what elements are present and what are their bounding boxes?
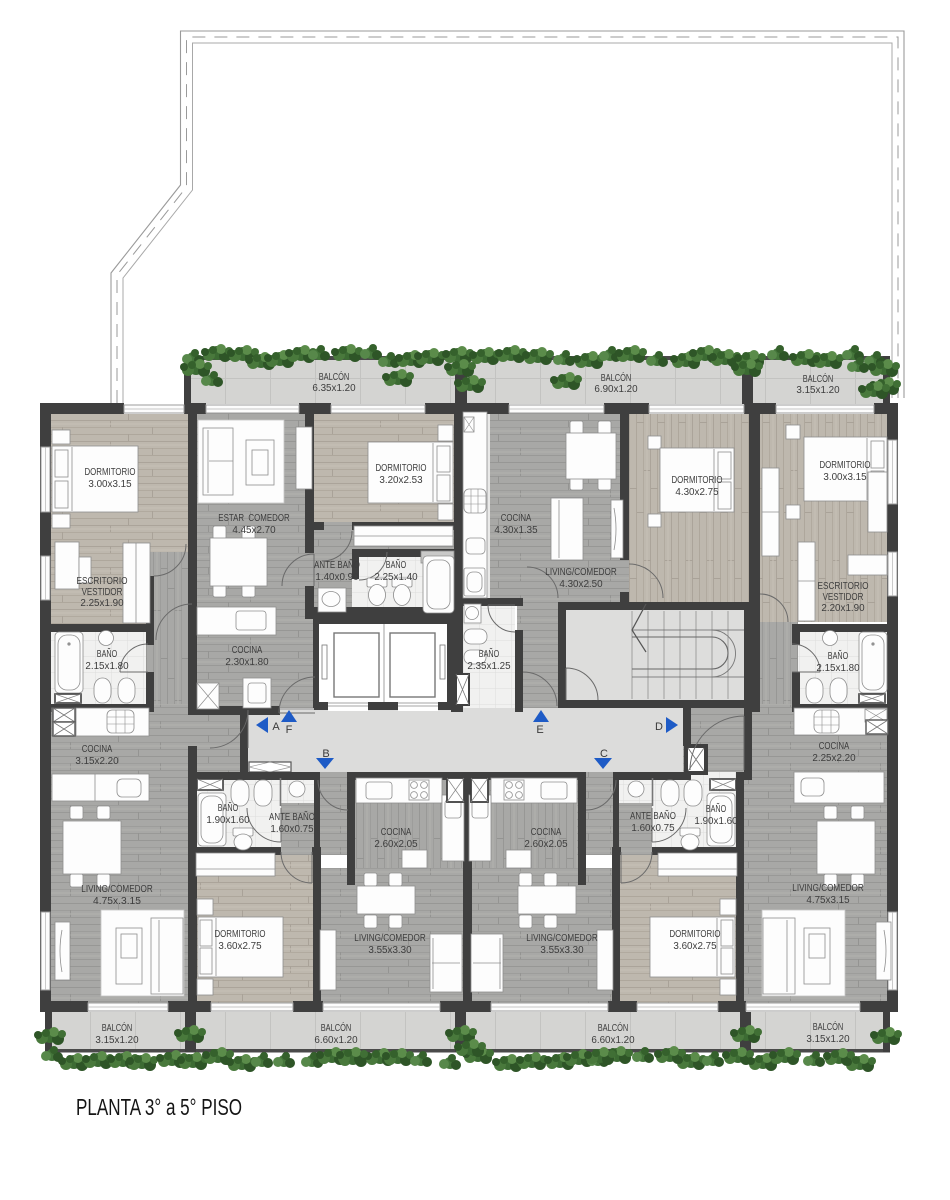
- svg-text:3.60x2.75: 3.60x2.75: [218, 941, 262, 952]
- svg-text:3.20x2.53: 3.20x2.53: [379, 475, 423, 486]
- svg-text:3.15x1.20: 3.15x1.20: [806, 1034, 850, 1045]
- svg-text:F: F: [286, 724, 293, 736]
- svg-text:BALCÓN: BALCÓN: [102, 1021, 133, 1034]
- svg-text:BALCÓN: BALCÓN: [598, 1021, 629, 1034]
- svg-text:BAÑO: BAÑO: [97, 647, 118, 660]
- svg-text:BALCÓN: BALCÓN: [813, 1020, 844, 1033]
- svg-text:VESTIDOR: VESTIDOR: [823, 592, 864, 603]
- svg-text:2.30x1.80: 2.30x1.80: [225, 657, 269, 668]
- svg-text:3.15x1.20: 3.15x1.20: [796, 385, 840, 396]
- svg-text:3.00x3.15: 3.00x3.15: [88, 479, 132, 490]
- svg-text:3.60x2.75: 3.60x2.75: [673, 941, 717, 952]
- svg-text:DORMITORIO: DORMITORIO: [215, 929, 266, 940]
- svg-text:4.30x1.35: 4.30x1.35: [494, 525, 538, 536]
- svg-text:3.55x3.30: 3.55x3.30: [540, 945, 584, 956]
- svg-text:BAÑO: BAÑO: [828, 649, 849, 662]
- svg-text:1.90x1.60: 1.90x1.60: [206, 815, 250, 826]
- svg-text:DORMITORIO: DORMITORIO: [672, 475, 723, 486]
- svg-text:LIVING/COMEDOR: LIVING/COMEDOR: [792, 883, 863, 894]
- svg-text:D: D: [655, 721, 663, 733]
- svg-text:4.75x3.15: 4.75x3.15: [806, 895, 850, 906]
- svg-text:COCINA: COCINA: [819, 741, 850, 752]
- svg-text:E: E: [536, 724, 543, 736]
- svg-text:COCINA: COCINA: [381, 827, 412, 838]
- svg-text:2.25x1.90: 2.25x1.90: [80, 598, 124, 609]
- svg-text:2.25x1.40: 2.25x1.40: [374, 572, 418, 583]
- svg-text:1.60x0.75: 1.60x0.75: [270, 824, 314, 835]
- svg-text:LIVING/COMEDOR: LIVING/COMEDOR: [81, 884, 152, 895]
- svg-text:LIVING/COMEDOR: LIVING/COMEDOR: [545, 567, 616, 578]
- svg-text:2.20x1.90: 2.20x1.90: [821, 603, 865, 614]
- svg-text:BAÑO: BAÑO: [479, 647, 500, 660]
- svg-text:COCINA: COCINA: [232, 645, 263, 656]
- svg-text:BALCÓN: BALCÓN: [601, 371, 632, 384]
- svg-text:COCINA: COCINA: [82, 744, 113, 755]
- svg-text:DORMITORIO: DORMITORIO: [670, 929, 721, 940]
- svg-text:3.15x1.20: 3.15x1.20: [95, 1035, 139, 1046]
- svg-text:VESTIDOR: VESTIDOR: [82, 587, 123, 598]
- svg-text:DORMITORIO: DORMITORIO: [820, 460, 871, 471]
- svg-text:4.30x2.75: 4.30x2.75: [675, 487, 719, 498]
- svg-text:2.60x2.05: 2.60x2.05: [374, 839, 418, 850]
- svg-text:6.35x1.20: 6.35x1.20: [312, 383, 356, 394]
- svg-text:BAÑO: BAÑO: [386, 558, 407, 571]
- svg-text:2.25x2.20: 2.25x2.20: [812, 753, 856, 764]
- svg-text:LIVING/COMEDOR: LIVING/COMEDOR: [354, 933, 425, 944]
- svg-text:2.15x1.80: 2.15x1.80: [816, 663, 860, 674]
- svg-text:PLANTA 3° a 5° PISO: PLANTA 3° a 5° PISO: [76, 1094, 242, 1120]
- svg-text:3.55x3.30: 3.55x3.30: [368, 945, 412, 956]
- svg-text:DORMITORIO: DORMITORIO: [376, 463, 427, 474]
- svg-text:ANTE BAÑO: ANTE BAÑO: [314, 558, 360, 571]
- svg-text:BALCÓN: BALCÓN: [321, 1021, 352, 1034]
- svg-text:ESCRITORIO: ESCRITORIO: [77, 576, 128, 587]
- svg-text:4.45x2.70: 4.45x2.70: [232, 525, 276, 536]
- svg-text:ANTE BAÑO: ANTE BAÑO: [630, 809, 676, 822]
- svg-text:BALCÓN: BALCÓN: [803, 372, 834, 385]
- svg-text:ESTAR COMEDOR: ESTAR COMEDOR: [218, 513, 289, 524]
- svg-text:C: C: [600, 748, 608, 760]
- svg-text:2.35x1.25: 2.35x1.25: [467, 661, 511, 672]
- svg-text:4.30x2.50: 4.30x2.50: [559, 579, 603, 590]
- svg-text:LIVING/COMEDOR: LIVING/COMEDOR: [526, 933, 597, 944]
- svg-text:A: A: [272, 721, 280, 733]
- svg-text:2.60x2.05: 2.60x2.05: [524, 839, 568, 850]
- svg-text:BALCÓN: BALCÓN: [319, 370, 350, 383]
- svg-text:4.75x.3.15: 4.75x.3.15: [93, 896, 141, 907]
- svg-text:1.90x1.60: 1.90x1.60: [694, 816, 738, 827]
- svg-text:B: B: [322, 748, 329, 760]
- svg-text:1.60x0.75: 1.60x0.75: [631, 823, 675, 834]
- svg-text:COCINA: COCINA: [501, 513, 532, 524]
- svg-text:6.60x1.20: 6.60x1.20: [314, 1035, 358, 1046]
- svg-text:COCINA: COCINA: [531, 827, 562, 838]
- svg-text:BAÑO: BAÑO: [706, 802, 727, 815]
- svg-text:ANTE BAÑO: ANTE BAÑO: [269, 810, 315, 823]
- svg-text:1.40x0.90: 1.40x0.90: [315, 572, 359, 583]
- svg-text:DORMITORIO: DORMITORIO: [85, 467, 136, 478]
- svg-text:3.00x3.15: 3.00x3.15: [823, 472, 867, 483]
- svg-text:ESCRITORIO: ESCRITORIO: [818, 581, 869, 592]
- svg-text:6.90x1.20: 6.90x1.20: [594, 384, 638, 395]
- svg-text:2.15x1.80: 2.15x1.80: [85, 661, 129, 672]
- svg-text:BAÑO: BAÑO: [218, 801, 239, 814]
- svg-text:6.60x1.20: 6.60x1.20: [591, 1035, 635, 1046]
- svg-text:3.15x2.20: 3.15x2.20: [75, 756, 119, 767]
